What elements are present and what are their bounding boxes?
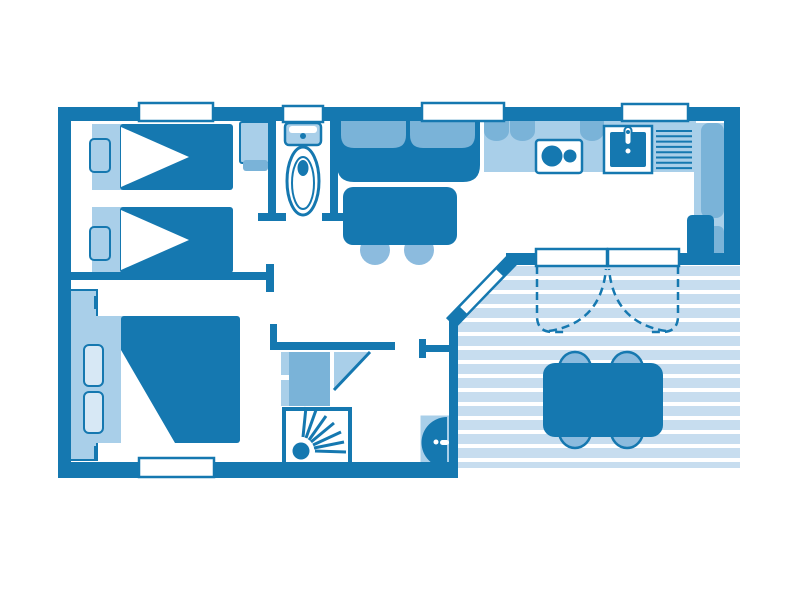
wall-cap <box>322 213 350 221</box>
double-bed <box>82 316 240 443</box>
living-room <box>337 121 480 265</box>
burner-large <box>542 146 563 167</box>
wardrobe <box>240 122 270 163</box>
wall-corridor-right <box>449 318 458 468</box>
bathroom <box>285 123 321 215</box>
drain <box>625 148 632 155</box>
single-bed-1 <box>90 124 233 190</box>
dining-table <box>543 363 663 437</box>
wall-cap <box>419 339 426 358</box>
water-heater-dot <box>434 440 439 445</box>
wall-bathroom-left <box>268 121 276 215</box>
bed-pillow <box>84 345 103 386</box>
bed-pillow <box>90 139 110 172</box>
counter-unit <box>510 121 535 141</box>
stove <box>536 140 582 173</box>
wall-right <box>724 107 740 265</box>
toilet <box>285 123 321 215</box>
faucet <box>625 127 632 145</box>
wall-nook <box>270 342 395 350</box>
sliding-bay-panel <box>608 249 679 266</box>
fridge <box>701 123 724 218</box>
floor-plan-drawing <box>0 0 800 600</box>
hall-cabinet-notch <box>281 375 289 380</box>
terrace <box>458 265 740 468</box>
floor-plan-canvas <box>0 0 800 600</box>
toilet-flush <box>298 160 309 176</box>
shower-room <box>281 352 452 471</box>
wall-bottom <box>58 462 458 478</box>
bed-pillow <box>84 392 103 433</box>
bedroom-1 <box>90 122 270 273</box>
shower <box>284 407 350 468</box>
water-heater-handle <box>440 440 449 445</box>
window-kitchen <box>622 104 688 121</box>
window-bedroom-1 <box>139 103 213 121</box>
sink <box>604 126 652 173</box>
sofa-cushion <box>341 121 406 148</box>
cabinet-dark <box>687 215 714 257</box>
wall-door-jamb <box>270 324 277 346</box>
kitchen <box>484 121 724 257</box>
bed-pillow <box>90 227 110 260</box>
closet-handle <box>94 446 98 459</box>
shower-drain <box>293 443 310 460</box>
faucet-head <box>626 130 630 134</box>
wall-cap <box>258 213 286 221</box>
wall-cap <box>266 264 274 292</box>
sliding-bay-panel <box>536 249 607 266</box>
coffee-table <box>343 187 457 245</box>
wall-left <box>58 107 71 478</box>
wardrobe-base <box>243 160 268 171</box>
toilet-tank-lid <box>289 126 317 133</box>
window-living <box>422 103 504 121</box>
closet-handle <box>94 296 98 309</box>
window-bathroom <box>283 106 323 122</box>
window-bedroom-2 <box>139 458 214 477</box>
counter-unit <box>580 121 604 141</box>
counter-unit <box>484 121 509 141</box>
wall-bedroom-divider <box>58 272 268 280</box>
wall-bathroom-right <box>330 121 338 215</box>
sofa-cushion <box>410 121 475 148</box>
burner-small <box>564 150 577 163</box>
bedroom-2 <box>66 290 240 460</box>
toilet-button <box>300 133 306 139</box>
single-bed-2 <box>90 207 233 273</box>
